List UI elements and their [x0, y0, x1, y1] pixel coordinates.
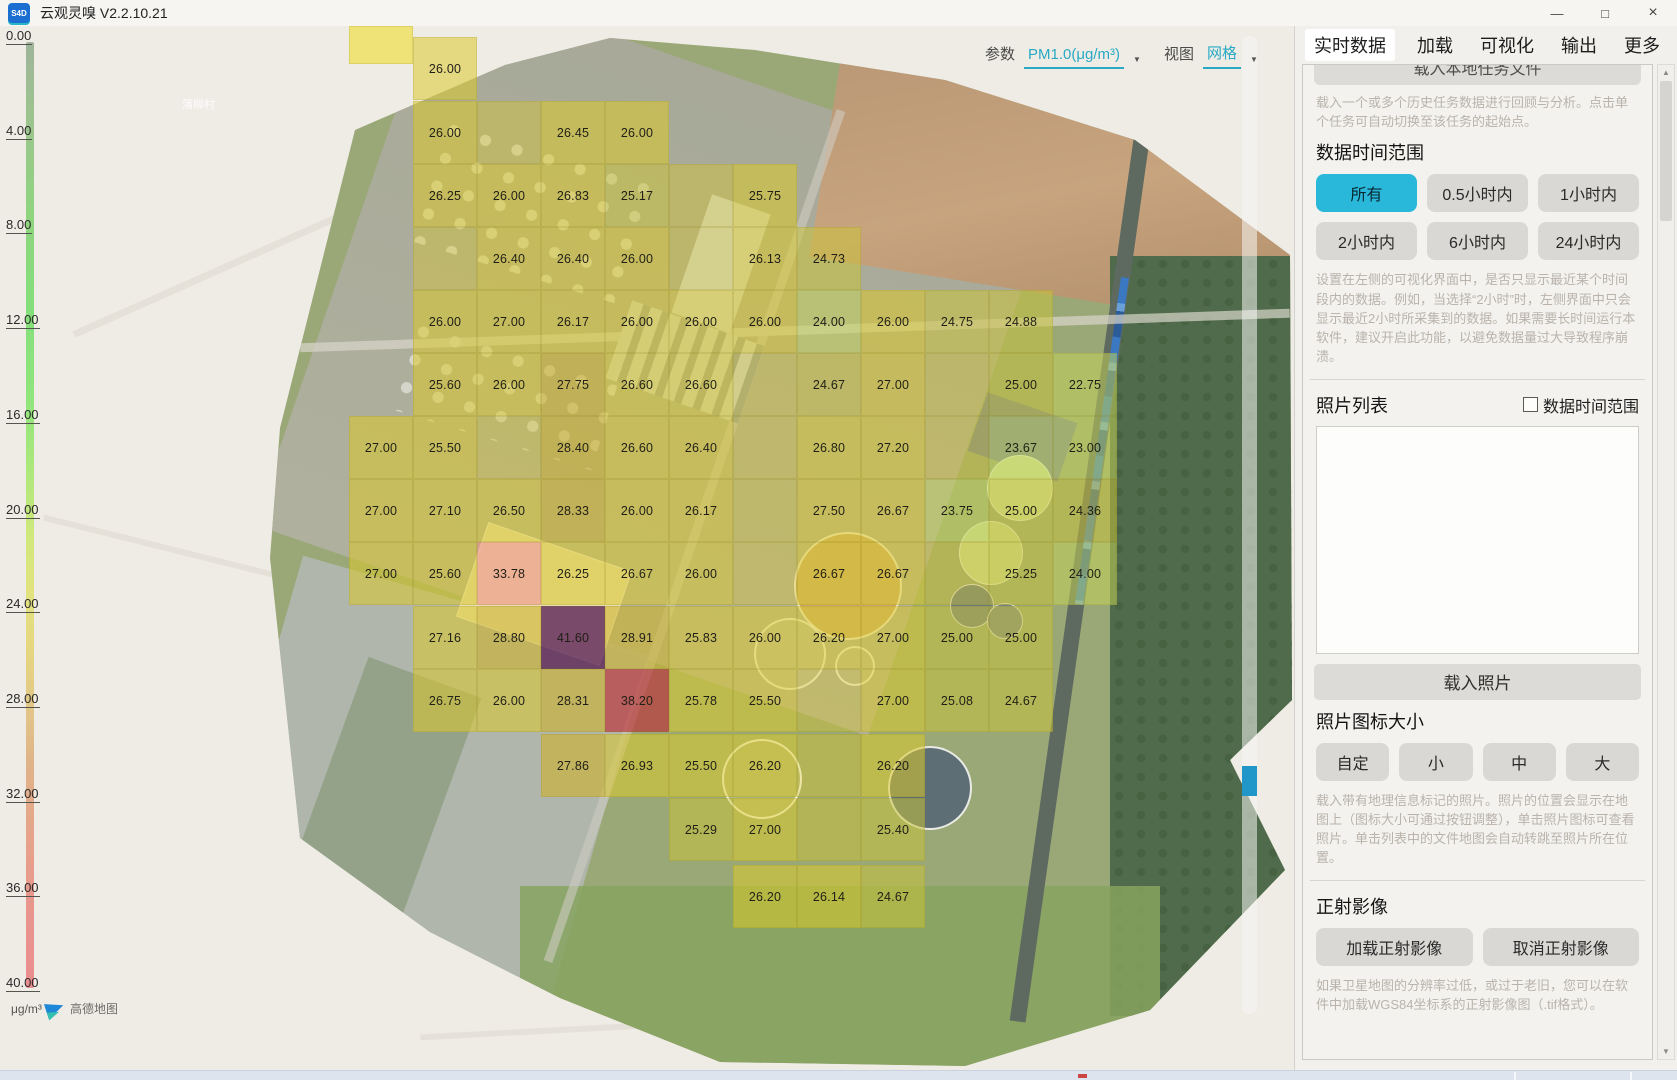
grid-cell-value: 27.00	[349, 542, 413, 605]
grid-cell-value: 27.00	[349, 479, 413, 542]
grid-cell-value: 25.50	[733, 669, 797, 732]
grid-cell	[413, 227, 477, 290]
map-vertical-slider[interactable]	[1242, 36, 1257, 1014]
colorbar-tick: 32.00	[6, 786, 40, 803]
colorbar-tick: 36.00	[6, 880, 40, 897]
photo-time-range-toggle[interactable]: 数据时间范围	[1523, 393, 1639, 417]
section-divider	[1310, 880, 1645, 881]
grid-cell-value: 27.16	[413, 606, 477, 669]
chevron-down-icon[interactable]: ▼	[1133, 55, 1141, 69]
view-select[interactable]: 网格	[1203, 42, 1241, 69]
grid-cell-value: 25.29	[669, 798, 733, 861]
photo-time-range-checkbox[interactable]	[1523, 397, 1538, 412]
photo-icon-size-title: 照片图标大小	[1316, 708, 1639, 734]
grid-cell-value: 26.25	[541, 542, 605, 605]
grid-cell	[477, 101, 541, 164]
time-range-button[interactable]: 1小时内	[1538, 174, 1639, 212]
grid-cell-value: 26.60	[605, 353, 669, 416]
grid-cell-value: 25.17	[605, 164, 669, 227]
grid-cell-value: 26.20	[861, 734, 925, 797]
tab-实时数据[interactable]: 实时数据	[1305, 29, 1395, 61]
maximize-button[interactable]: □	[1581, 0, 1629, 26]
grid-cell-value: 26.00	[669, 290, 733, 353]
window-title: 云观灵嗅 V2.2.10.21	[40, 3, 168, 23]
time-range-button[interactable]: 24小时内	[1538, 222, 1639, 260]
grid-cell-value: 27.50	[797, 479, 861, 542]
grid-cell-value: 26.17	[669, 479, 733, 542]
grid-cell	[925, 416, 989, 479]
photo-list-box[interactable]	[1316, 426, 1639, 654]
grid-cell-value: 26.00	[605, 227, 669, 290]
time-range-buttons: 所有0.5小时内1小时内2小时内6小时内24小时内	[1316, 174, 1639, 260]
grid-cell-value: 26.00	[605, 290, 669, 353]
close-button[interactable]: ×	[1629, 0, 1677, 26]
grid-cell-value: 26.00	[413, 37, 477, 100]
grid-cell-value: 24.73	[797, 227, 861, 290]
grid-cell-value: 27.20	[861, 416, 925, 479]
grid-cell-value: 26.00	[861, 290, 925, 353]
panel-scrollbar[interactable]: ▲ ▼	[1657, 64, 1675, 1060]
time-range-button[interactable]: 6小时内	[1427, 222, 1528, 260]
grid-cell-value: 26.67	[861, 479, 925, 542]
grid-cell-value: 27.00	[349, 416, 413, 479]
grid-cell-value: 24.36	[1053, 479, 1117, 542]
grid-cell-value: 26.45	[541, 101, 605, 164]
grid-cell-value: 25.08	[925, 669, 989, 732]
grid-cell-value: 24.67	[989, 669, 1053, 732]
grid-cell-value: 27.10	[413, 479, 477, 542]
time-range-button[interactable]: 0.5小时内	[1427, 174, 1528, 212]
tab-更多[interactable]: 更多	[1619, 29, 1665, 61]
grid-cell-value: 27.00	[477, 290, 541, 353]
grid-cell	[797, 734, 861, 797]
grid-cell-value: 23.75	[925, 479, 989, 542]
grid-cell-value: 26.00	[413, 290, 477, 353]
grid-cell	[925, 542, 989, 605]
grid-cell-value: 25.50	[413, 416, 477, 479]
tab-加载[interactable]: 加载	[1412, 29, 1458, 61]
grid-cell-value: 24.00	[1053, 542, 1117, 605]
grid-cell-value: 26.00	[733, 290, 797, 353]
time-range-title: 数据时间范围	[1316, 139, 1639, 165]
colorbar-tick: 28.00	[6, 691, 40, 708]
photo-icon-size-buttons: 自定小中大	[1316, 743, 1639, 781]
grid-cell-value: 26.67	[861, 542, 925, 605]
colorbar-tick: 4.00	[6, 123, 32, 140]
tab-可视化[interactable]: 可视化	[1475, 29, 1539, 61]
grid-cell-value: 25.00	[989, 353, 1053, 416]
time-range-button[interactable]: 2小时内	[1316, 222, 1417, 260]
colorbar-tick: 40.00	[6, 975, 40, 992]
photo-icon-size-button[interactable]: 小	[1399, 743, 1472, 781]
load-task-desc: 载入一个或多个历史任务数据进行回顾与分析。点击单个任务可自动切换至该任务的起始点…	[1316, 93, 1639, 131]
minimize-button[interactable]: —	[1533, 0, 1581, 26]
attribution-text: 高德地图	[70, 1000, 118, 1017]
load-task-file-button[interactable]: 载入本地任务文件	[1314, 64, 1641, 85]
grid-cell	[925, 353, 989, 416]
colorbar-tick: 24.00	[6, 596, 40, 613]
map-attribution: 高德地图	[46, 1000, 118, 1017]
grid-cell-value: 24.67	[861, 865, 925, 928]
chevron-down-icon[interactable]: ▼	[1250, 55, 1258, 69]
grid-cell-value: 26.00	[477, 353, 541, 416]
grid-cell-value: 28.80	[477, 606, 541, 669]
param-select[interactable]: PM1.0(μg/m³)	[1024, 46, 1124, 69]
scroll-up-icon[interactable]: ▲	[1658, 68, 1674, 77]
colorbar-tick: 0.00	[6, 28, 32, 45]
amap-logo-icon	[44, 998, 66, 1019]
grid-cell-value: 28.31	[541, 669, 605, 732]
grid-cell-value: 24.75	[925, 290, 989, 353]
param-label: 参数	[985, 43, 1015, 69]
grid-cell	[669, 227, 733, 290]
grid-cell-value: 26.25	[413, 164, 477, 227]
grid-cell-value: 26.67	[797, 542, 861, 605]
grid-cell-value: 26.00	[413, 101, 477, 164]
ortho-title: 正射影像	[1316, 893, 1639, 919]
photo-icon-size-button[interactable]: 自定	[1316, 743, 1389, 781]
side-panel: 实时数据加载可视化输出更多 载入本地任务文件 载入一个或多个历史任务数据进行回顾…	[1294, 26, 1677, 1070]
grid-cell-value: 26.20	[733, 865, 797, 928]
grid-cell-value: 27.00	[733, 798, 797, 861]
grid-cell-value: 26.50	[477, 479, 541, 542]
grid-cell-value: 28.33	[541, 479, 605, 542]
grid-cell	[733, 479, 797, 542]
grid-cell-value: 25.00	[989, 479, 1053, 542]
grid-cell-value: 22.75	[1053, 353, 1117, 416]
grid-cell-value: 25.75	[733, 164, 797, 227]
tab-输出[interactable]: 输出	[1556, 29, 1602, 61]
grid-cell-value: 24.00	[797, 290, 861, 353]
grid-cell-value: 25.40	[861, 798, 925, 861]
photo-icon-size-button[interactable]: 中	[1483, 743, 1556, 781]
grid-cell-value: 26.40	[477, 227, 541, 290]
colorbar-tick: 16.00	[6, 407, 40, 424]
grid-cell-value: 27.86	[541, 734, 605, 797]
grid-cell	[477, 416, 541, 479]
grid-cell	[797, 669, 861, 732]
photo-list-title: 照片列表	[1316, 392, 1388, 418]
grid-cell-value: 26.00	[605, 101, 669, 164]
cancel-ortho-button[interactable]: 取消正射影像	[1483, 928, 1640, 966]
time-range-desc: 设置在左侧的可视化界面中，是否只显示最近某个时间段内的数据。例如，当选择“2小时…	[1316, 270, 1639, 366]
panel-tabs: 实时数据加载可视化输出更多	[1295, 26, 1677, 64]
grid-cell-value: 33.78	[477, 542, 541, 605]
view-label: 视图	[1164, 43, 1194, 69]
section-divider	[1310, 379, 1645, 380]
grid-cell-value: 25.00	[925, 606, 989, 669]
grid-cell-value: 26.40	[669, 416, 733, 479]
photo-icon-size-desc: 载入带有地理信息标记的照片。照片的位置会显示在地图上（图标大小可通过按钮调整），…	[1316, 791, 1639, 868]
colorbar-unit: μg/m³	[11, 1002, 42, 1016]
grid-cell-value: 26.20	[733, 734, 797, 797]
grid-cell-value: 28.40	[541, 416, 605, 479]
load-ortho-button[interactable]: 加载正射影像	[1316, 928, 1473, 966]
grid-cell-value: 26.20	[797, 606, 861, 669]
scrollbar-thumb[interactable]	[1660, 81, 1672, 221]
basemap-road	[43, 515, 297, 584]
grid-cell	[733, 416, 797, 479]
colorbar-tick: 20.00	[6, 502, 40, 519]
grid-cell-value: 25.78	[669, 669, 733, 732]
grid-cell-value: 25.25	[989, 542, 1053, 605]
grid-cell-value: 26.00	[669, 542, 733, 605]
panel-scroll-area[interactable]: 载入本地任务文件 载入一个或多个历史任务数据进行回顾与分析。点击单个任务可自动切…	[1302, 64, 1653, 1060]
colorbar-tick: 8.00	[6, 217, 32, 234]
grid-cell-value: 25.83	[669, 606, 733, 669]
grid-cell-value: 41.60	[541, 606, 605, 669]
grid-cell	[733, 542, 797, 605]
grid-cell	[733, 353, 797, 416]
window-titlebar: S4D 云观灵嗅 V2.2.10.21 — □ ×	[0, 0, 1677, 26]
photo-icon-size-button[interactable]: 大	[1566, 743, 1639, 781]
statusbar-indicator	[1078, 1074, 1087, 1078]
grid-cell-value: 27.75	[541, 353, 605, 416]
grid-cell-value: 25.00	[989, 606, 1053, 669]
grid-cell-value: 25.60	[413, 353, 477, 416]
slider-thumb[interactable]	[1242, 766, 1257, 796]
grid-cell-value: 26.17	[541, 290, 605, 353]
colorbar-tick: 12.00	[6, 312, 40, 329]
grid-cell-value: 26.60	[605, 416, 669, 479]
grid-cell-value: 27.00	[861, 669, 925, 732]
grid-cell	[669, 164, 733, 227]
app-logo-icon: S4D	[8, 3, 30, 23]
grid-cell-value: 26.75	[413, 669, 477, 732]
map-toolbar: 参数 PM1.0(μg/m³) ▼ 视图 网格 ▼	[985, 42, 1258, 69]
statusbar-divider	[1514, 1072, 1516, 1080]
village-label: 蒲柳村	[182, 96, 215, 112]
grid-cell-value: 23.67	[989, 416, 1053, 479]
grid-cell-value: 38.20	[605, 669, 669, 732]
grid-cell-value: 25.60	[413, 542, 477, 605]
load-photos-button[interactable]: 载入照片	[1314, 664, 1641, 700]
grid-cell	[797, 798, 861, 861]
time-range-button[interactable]: 所有	[1316, 174, 1417, 212]
grid-cell-value: 26.80	[797, 416, 861, 479]
grid-cell-value: 26.00	[477, 669, 541, 732]
grid-cell-value: 26.40	[541, 227, 605, 290]
grid-cell-value: 26.60	[669, 353, 733, 416]
grid-cell-value: 26.14	[797, 865, 861, 928]
ortho-desc: 如果卫星地图的分辨率过低，或过于老旧，您可以在软件中加载WGS84坐标系的正射影…	[1316, 976, 1639, 1014]
grid-cell-value: 26.93	[605, 734, 669, 797]
map-canvas[interactable]: 26.0026.0026.4526.0026.2526.0026.8325.17…	[0, 26, 1294, 1070]
grid-cell-value: 26.00	[477, 164, 541, 227]
bottom-statusbar	[0, 1070, 1677, 1080]
grid-cell	[349, 26, 413, 64]
grid-cell-value: 26.00	[733, 606, 797, 669]
grid-cell-value: 25.50	[669, 734, 733, 797]
grid-cell-value: 23.00	[1053, 416, 1117, 479]
scroll-down-icon[interactable]: ▼	[1658, 1047, 1674, 1056]
grid-cell-value: 26.67	[605, 542, 669, 605]
grid-cell-value: 28.91	[605, 606, 669, 669]
grid-cell-value: 27.00	[861, 606, 925, 669]
statusbar-divider	[1630, 1072, 1632, 1080]
photo-time-range-label: 数据时间范围	[1543, 393, 1639, 417]
grid-cell-value: 24.88	[989, 290, 1053, 353]
grid-cell-value: 27.00	[861, 353, 925, 416]
grid-cell-value: 24.67	[797, 353, 861, 416]
grid-cell-value: 26.00	[605, 479, 669, 542]
grid-cell-value: 26.83	[541, 164, 605, 227]
grid-cell-value: 26.13	[733, 227, 797, 290]
